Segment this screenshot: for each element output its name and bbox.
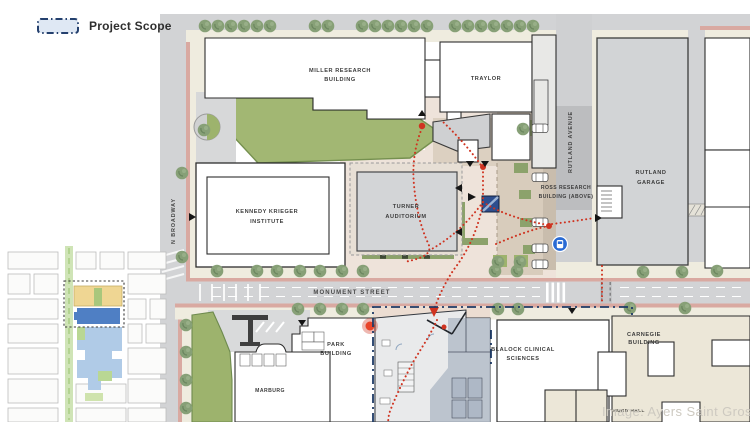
car-icon xyxy=(532,124,548,133)
building-mid-white xyxy=(492,114,530,160)
car-icon xyxy=(532,173,548,182)
car-icon xyxy=(532,244,548,253)
legend-label: Project Scope xyxy=(89,19,172,33)
building-kennedy xyxy=(196,163,345,267)
carnegie-court-1 xyxy=(598,352,626,396)
bus-stop-icon xyxy=(553,237,568,252)
floorplan-new-building xyxy=(375,310,490,422)
image-credit: Image: Ayers Saint Gross xyxy=(602,404,750,419)
path-node-dot xyxy=(419,123,425,129)
car-icon xyxy=(532,260,548,269)
site-plan-page: Project Scope xyxy=(0,0,750,422)
legend: Project Scope xyxy=(36,17,172,35)
label-marburg: MARBURG xyxy=(255,388,285,394)
label-carnegie-1: CARNEGIE xyxy=(627,332,661,338)
building-ross xyxy=(532,35,556,168)
label-carnegie-2: BUILDING xyxy=(628,340,659,346)
project-scope-dash-icon xyxy=(38,19,78,33)
label-monument-street: MONUMENT STREET xyxy=(313,290,390,296)
carnegie-court-2 xyxy=(648,342,674,376)
label-kennedy-2: INSTITUTE xyxy=(250,219,284,225)
label-rutland-avenue: RUTLAND AVENUE xyxy=(568,111,574,173)
building-connector xyxy=(425,60,440,97)
building-east xyxy=(705,150,750,268)
inset-map xyxy=(8,246,166,422)
building-mid-small xyxy=(458,140,478,162)
label-garage-1: RUTLAND xyxy=(636,170,667,176)
building-northeast xyxy=(705,38,750,150)
site-plan-map: MILLER RESEARCH BUILDING TRAYLOR KENNEDY… xyxy=(0,0,750,422)
label-blalock-1: BLALOCK CLINICAL xyxy=(491,347,555,353)
label-n-broadway: N BROADWAY xyxy=(171,198,177,244)
label-garage-2: GARAGE xyxy=(637,180,665,186)
label-miller-1: MILLER RESEARCH xyxy=(309,68,371,74)
inset-highlight-blue xyxy=(77,308,120,324)
building-garage xyxy=(597,38,688,265)
project-scope-swatch xyxy=(36,17,80,35)
label-miller-2: BUILDING xyxy=(324,77,355,83)
label-turner-1: TURNER xyxy=(393,204,420,210)
label-traylor: TRAYLOR xyxy=(471,76,501,82)
label-kennedy-1: KENNEDY KRIEGER xyxy=(236,209,299,215)
path-node-dot xyxy=(546,223,552,229)
label-turner-2: AUDITORIUM xyxy=(385,214,426,220)
label-ross-2: BUILDING (ABOVE) xyxy=(539,194,594,200)
label-blalock-2: SCIENCES xyxy=(507,356,540,362)
label-park-1: PARK xyxy=(327,342,345,348)
label-ross-1: ROSS RESEARCH xyxy=(541,185,591,191)
path-node-dot xyxy=(442,325,447,330)
carnegie-court-3 xyxy=(712,340,750,366)
label-park-2: BUILDING xyxy=(320,351,351,357)
building-turner xyxy=(357,172,457,251)
